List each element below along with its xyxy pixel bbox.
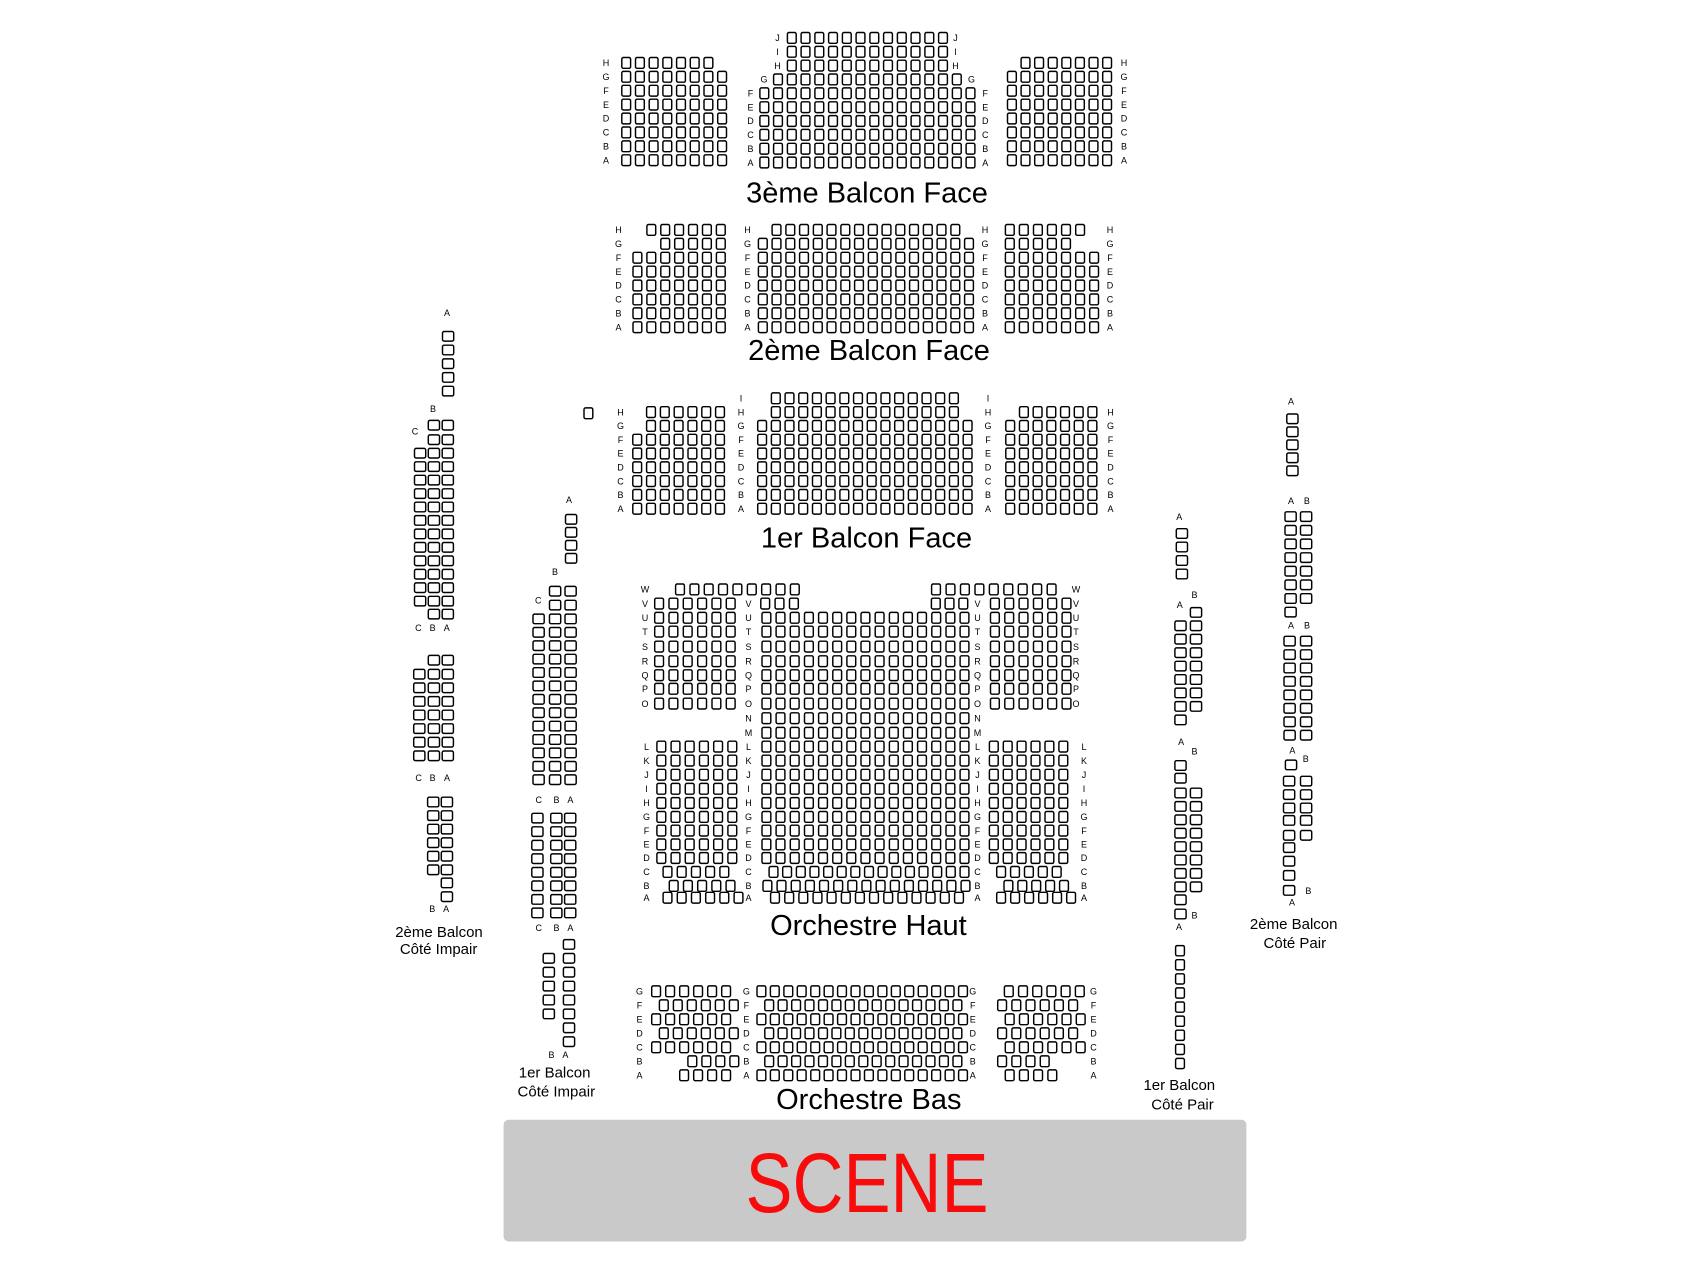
svg-text:D: D xyxy=(617,463,624,473)
svg-text:C: C xyxy=(535,596,542,606)
svg-text:D: D xyxy=(1121,114,1128,124)
svg-text:F: F xyxy=(1107,253,1113,263)
svg-text:A: A xyxy=(1178,737,1184,747)
svg-text:A: A xyxy=(744,322,750,332)
svg-text:F: F xyxy=(744,1001,750,1011)
svg-text:D: D xyxy=(643,853,650,863)
svg-text:G: G xyxy=(737,421,744,431)
svg-text:G: G xyxy=(617,421,624,431)
svg-text:A: A xyxy=(1081,893,1087,903)
svg-text:Orchestre Haut: Orchestre Haut xyxy=(770,910,967,942)
svg-text:B: B xyxy=(553,795,559,805)
svg-text:A: A xyxy=(1177,600,1183,610)
svg-text:A: A xyxy=(617,504,623,514)
svg-text:F: F xyxy=(975,826,981,836)
svg-text:F: F xyxy=(1108,435,1114,445)
svg-text:A: A xyxy=(1176,512,1182,522)
svg-text:M: M xyxy=(745,728,753,738)
svg-text:H: H xyxy=(974,798,981,808)
svg-text:I: I xyxy=(1083,784,1086,794)
svg-text:B: B xyxy=(985,490,991,500)
svg-text:B: B xyxy=(1191,911,1197,921)
svg-text:B: B xyxy=(1304,496,1310,506)
svg-text:G: G xyxy=(1090,987,1097,997)
svg-text:J: J xyxy=(644,770,649,780)
svg-text:E: E xyxy=(738,449,744,459)
svg-text:I: I xyxy=(747,784,750,794)
svg-text:F: F xyxy=(1091,1001,1097,1011)
svg-text:A: A xyxy=(1288,621,1294,631)
svg-text:S: S xyxy=(974,642,980,652)
svg-text:B: B xyxy=(1305,886,1311,896)
svg-text:G: G xyxy=(643,812,650,822)
svg-text:O: O xyxy=(1072,699,1079,709)
svg-text:E: E xyxy=(974,840,980,850)
svg-text:O: O xyxy=(641,699,648,709)
svg-text:E: E xyxy=(982,267,988,277)
svg-text:C: C xyxy=(1081,867,1088,877)
svg-text:S: S xyxy=(745,642,751,652)
svg-text:C: C xyxy=(536,923,543,933)
svg-text:B: B xyxy=(974,881,980,891)
svg-text:V: V xyxy=(745,599,751,609)
svg-text:N: N xyxy=(974,713,981,723)
svg-text:A: A xyxy=(745,893,751,903)
svg-text:E: E xyxy=(603,100,609,110)
svg-text:C: C xyxy=(636,1043,643,1053)
svg-text:L: L xyxy=(644,742,649,752)
svg-text:L: L xyxy=(746,742,751,752)
svg-text:A: A xyxy=(747,158,753,168)
svg-text:B: B xyxy=(548,1050,554,1060)
svg-text:A: A xyxy=(982,158,988,168)
svg-text:B: B xyxy=(743,1057,749,1067)
svg-text:C: C xyxy=(1107,476,1114,486)
svg-text:D: D xyxy=(636,1029,643,1039)
svg-text:A: A xyxy=(636,1071,642,1081)
svg-text:B: B xyxy=(617,490,623,500)
svg-text:R: R xyxy=(974,656,981,666)
svg-text:A: A xyxy=(985,504,991,514)
svg-text:K: K xyxy=(974,756,980,766)
svg-text:B: B xyxy=(982,309,988,319)
svg-text:F: F xyxy=(618,435,624,445)
svg-text:3ème Balcon Face: 3ème Balcon Face xyxy=(746,178,988,210)
svg-text:F: F xyxy=(616,253,622,263)
svg-text:B: B xyxy=(429,904,435,914)
svg-text:C: C xyxy=(1107,295,1114,305)
svg-text:H: H xyxy=(617,407,624,417)
svg-text:D: D xyxy=(985,463,992,473)
svg-text:A: A xyxy=(970,1071,976,1081)
svg-text:Q: Q xyxy=(641,670,648,680)
svg-text:A: A xyxy=(1090,1071,1096,1081)
svg-text:F: F xyxy=(970,1001,976,1011)
svg-text:G: G xyxy=(1120,72,1127,82)
svg-text:C: C xyxy=(744,295,751,305)
svg-text:C: C xyxy=(1121,128,1128,138)
svg-text:A: A xyxy=(1107,322,1113,332)
svg-text:V: V xyxy=(642,599,648,609)
svg-text:1er Balcon: 1er Balcon xyxy=(519,1065,591,1082)
svg-text:C: C xyxy=(970,1043,977,1053)
svg-text:C: C xyxy=(747,130,754,140)
svg-text:D: D xyxy=(982,281,989,291)
svg-text:H: H xyxy=(1107,225,1114,235)
svg-text:K: K xyxy=(1081,756,1087,766)
svg-text:A: A xyxy=(1288,397,1294,407)
svg-text:Côté Pair: Côté Pair xyxy=(1264,935,1327,952)
svg-text:Q: Q xyxy=(974,670,981,680)
svg-text:D: D xyxy=(603,114,610,124)
svg-text:E: E xyxy=(744,267,750,277)
svg-text:B: B xyxy=(552,567,558,577)
svg-text:2ème Balcon: 2ème Balcon xyxy=(395,924,483,941)
svg-text:E: E xyxy=(982,102,988,112)
svg-text:J: J xyxy=(775,33,780,43)
svg-text:H: H xyxy=(1081,798,1088,808)
svg-text:E: E xyxy=(615,267,621,277)
svg-text:C: C xyxy=(643,867,650,877)
svg-text:E: E xyxy=(985,449,991,459)
svg-text:G: G xyxy=(636,987,643,997)
svg-text:S: S xyxy=(1073,642,1079,652)
svg-text:F: F xyxy=(603,86,609,96)
svg-text:H: H xyxy=(738,407,745,417)
svg-text:F: F xyxy=(745,253,751,263)
svg-text:E: E xyxy=(1107,449,1113,459)
svg-text:E: E xyxy=(1081,840,1087,850)
svg-text:C: C xyxy=(603,128,610,138)
svg-text:H: H xyxy=(982,225,989,235)
svg-text:C: C xyxy=(415,773,422,783)
svg-text:F: F xyxy=(1081,826,1087,836)
svg-text:E: E xyxy=(1090,1015,1096,1025)
svg-text:H: H xyxy=(603,58,610,68)
svg-text:E: E xyxy=(1121,100,1127,110)
svg-text:G: G xyxy=(981,239,988,249)
svg-text:A: A xyxy=(615,322,621,332)
svg-text:E: E xyxy=(617,449,623,459)
svg-text:J: J xyxy=(975,770,980,780)
svg-text:A: A xyxy=(1289,746,1295,756)
svg-text:F: F xyxy=(985,435,991,445)
svg-text:A: A xyxy=(982,322,988,332)
svg-text:N: N xyxy=(745,713,752,723)
svg-text:J: J xyxy=(746,770,751,780)
svg-text:A: A xyxy=(444,308,450,318)
svg-text:H: H xyxy=(1107,407,1114,417)
svg-text:I: I xyxy=(976,784,979,794)
svg-text:B: B xyxy=(744,309,750,319)
svg-text:D: D xyxy=(1107,281,1114,291)
svg-text:B: B xyxy=(1191,590,1197,600)
svg-text:J: J xyxy=(953,33,958,43)
svg-text:G: G xyxy=(760,75,767,85)
svg-text:U: U xyxy=(745,613,752,623)
svg-text:C: C xyxy=(415,623,422,633)
svg-text:D: D xyxy=(1107,463,1114,473)
svg-text:D: D xyxy=(745,853,752,863)
svg-text:D: D xyxy=(1081,853,1088,863)
svg-text:I: I xyxy=(987,394,990,404)
svg-text:C: C xyxy=(743,1043,750,1053)
svg-text:B: B xyxy=(1090,1057,1096,1067)
svg-text:B: B xyxy=(1191,746,1197,756)
svg-text:B: B xyxy=(747,144,753,154)
svg-text:B: B xyxy=(553,923,559,933)
svg-text:H: H xyxy=(643,798,650,808)
svg-text:B: B xyxy=(745,881,751,891)
svg-text:C: C xyxy=(974,867,981,877)
svg-text:U: U xyxy=(1073,613,1080,623)
svg-text:G: G xyxy=(744,239,751,249)
svg-text:G: G xyxy=(1106,239,1113,249)
svg-text:D: D xyxy=(1090,1029,1097,1039)
svg-text:C: C xyxy=(745,867,752,877)
svg-text:E: E xyxy=(743,1015,749,1025)
svg-text:G: G xyxy=(974,812,981,822)
svg-text:A: A xyxy=(444,773,450,783)
svg-text:B: B xyxy=(636,1057,642,1067)
svg-text:L: L xyxy=(1081,742,1086,752)
svg-text:U: U xyxy=(974,613,981,623)
svg-text:B: B xyxy=(1107,490,1113,500)
svg-text:R: R xyxy=(745,656,752,666)
svg-text:B: B xyxy=(1121,142,1127,152)
svg-text:E: E xyxy=(643,840,649,850)
svg-text:B: B xyxy=(1107,309,1113,319)
svg-text:A: A xyxy=(567,923,573,933)
svg-text:I: I xyxy=(740,394,743,404)
svg-text:B: B xyxy=(643,881,649,891)
svg-text:B: B xyxy=(1081,881,1087,891)
svg-text:O: O xyxy=(745,699,752,709)
svg-text:Côté Impair: Côté Impair xyxy=(400,941,478,958)
svg-text:C: C xyxy=(738,476,745,486)
svg-text:V: V xyxy=(974,599,980,609)
svg-text:H: H xyxy=(1121,58,1128,68)
svg-text:P: P xyxy=(974,684,980,694)
svg-text:F: F xyxy=(983,89,989,99)
svg-text:E: E xyxy=(1107,267,1113,277)
svg-text:H: H xyxy=(615,225,622,235)
svg-text:T: T xyxy=(975,627,981,637)
svg-text:A: A xyxy=(743,1071,749,1081)
svg-text:A: A xyxy=(643,893,649,903)
svg-text:H: H xyxy=(774,61,781,71)
svg-text:L: L xyxy=(975,742,980,752)
svg-text:B: B xyxy=(738,490,744,500)
svg-text:Orchestre Bas: Orchestre Bas xyxy=(776,1084,961,1116)
svg-text:F: F xyxy=(982,253,988,263)
svg-text:F: F xyxy=(1121,86,1127,96)
svg-text:A: A xyxy=(603,155,609,165)
svg-text:H: H xyxy=(952,61,959,71)
svg-text:D: D xyxy=(615,281,622,291)
svg-text:A: A xyxy=(1289,898,1295,908)
svg-text:A: A xyxy=(1107,504,1113,514)
svg-text:D: D xyxy=(747,116,754,126)
svg-text:A: A xyxy=(738,504,744,514)
svg-text:I: I xyxy=(954,47,957,57)
svg-text:2ème Balcon Face: 2ème Balcon Face xyxy=(748,335,990,367)
svg-text:F: F xyxy=(637,1001,643,1011)
svg-text:B: B xyxy=(1303,754,1309,764)
svg-text:T: T xyxy=(746,627,752,637)
svg-text:V: V xyxy=(1073,599,1079,609)
svg-text:Côté Impair: Côté Impair xyxy=(518,1084,596,1101)
svg-text:F: F xyxy=(738,435,744,445)
svg-text:B: B xyxy=(982,144,988,154)
svg-text:C: C xyxy=(617,476,624,486)
svg-text:A: A xyxy=(562,1050,568,1060)
svg-text:J: J xyxy=(1082,770,1087,780)
svg-text:D: D xyxy=(982,116,989,126)
svg-text:A: A xyxy=(1121,155,1127,165)
svg-text:P: P xyxy=(1073,684,1079,694)
svg-text:F: F xyxy=(748,89,754,99)
svg-text:A: A xyxy=(1288,496,1294,506)
svg-text:E: E xyxy=(745,840,751,850)
svg-text:E: E xyxy=(636,1015,642,1025)
svg-text:C: C xyxy=(985,476,992,486)
svg-text:G: G xyxy=(615,239,622,249)
svg-text:H: H xyxy=(745,798,752,808)
svg-text:G: G xyxy=(984,421,991,431)
svg-text:H: H xyxy=(985,407,992,417)
svg-text:A: A xyxy=(567,795,573,805)
svg-text:B: B xyxy=(430,623,436,633)
svg-text:G: G xyxy=(1107,421,1114,431)
svg-text:F: F xyxy=(746,826,752,836)
svg-text:T: T xyxy=(1073,627,1079,637)
svg-text:G: G xyxy=(745,812,752,822)
svg-text:G: G xyxy=(602,72,609,82)
svg-text:C: C xyxy=(412,427,419,437)
svg-text:O: O xyxy=(974,699,981,709)
svg-text:D: D xyxy=(743,1029,750,1039)
svg-text:R: R xyxy=(642,656,649,666)
svg-text:Q: Q xyxy=(745,670,752,680)
svg-text:A: A xyxy=(974,893,980,903)
svg-text:B: B xyxy=(430,773,436,783)
svg-text:1er Balcon Face: 1er Balcon Face xyxy=(761,523,972,555)
svg-text:B: B xyxy=(430,404,436,414)
svg-text:A: A xyxy=(443,904,449,914)
svg-text:A: A xyxy=(1176,922,1182,932)
svg-text:G: G xyxy=(1080,812,1087,822)
svg-text:G: G xyxy=(969,987,976,997)
svg-text:G: G xyxy=(743,987,750,997)
svg-text:G: G xyxy=(968,75,975,85)
svg-text:R: R xyxy=(1073,656,1080,666)
svg-text:D: D xyxy=(970,1029,977,1039)
svg-text:K: K xyxy=(745,756,751,766)
svg-text:1er Balcon: 1er Balcon xyxy=(1143,1077,1215,1094)
svg-text:K: K xyxy=(643,756,649,766)
svg-text:C: C xyxy=(982,130,989,140)
svg-text:A: A xyxy=(566,495,572,505)
svg-text:T: T xyxy=(642,627,648,637)
svg-text:I: I xyxy=(645,784,648,794)
svg-text:A: A xyxy=(444,623,450,633)
svg-text:F: F xyxy=(644,826,650,836)
svg-text:C: C xyxy=(982,295,989,305)
svg-text:D: D xyxy=(738,463,745,473)
svg-text:C: C xyxy=(1090,1043,1097,1053)
svg-text:2ème Balcon: 2ème Balcon xyxy=(1250,916,1338,933)
svg-text:Q: Q xyxy=(1072,670,1079,680)
svg-text:B: B xyxy=(603,142,609,152)
svg-text:B: B xyxy=(970,1057,976,1067)
svg-text:E: E xyxy=(747,102,753,112)
svg-text:Côté Pair: Côté Pair xyxy=(1151,1097,1214,1114)
svg-text:SCENE: SCENE xyxy=(746,1136,989,1230)
svg-text:S: S xyxy=(642,642,648,652)
svg-text:U: U xyxy=(642,613,649,623)
svg-text:B: B xyxy=(615,309,621,319)
svg-text:W: W xyxy=(1072,585,1081,595)
svg-text:W: W xyxy=(641,585,650,595)
svg-text:P: P xyxy=(642,684,648,694)
svg-text:C: C xyxy=(615,295,622,305)
svg-text:M: M xyxy=(974,728,982,738)
svg-text:C: C xyxy=(536,795,543,805)
svg-text:B: B xyxy=(1304,621,1310,631)
svg-text:H: H xyxy=(744,225,751,235)
svg-text:D: D xyxy=(744,281,751,291)
svg-text:P: P xyxy=(745,684,751,694)
svg-text:E: E xyxy=(970,1015,976,1025)
svg-text:D: D xyxy=(974,853,981,863)
svg-text:I: I xyxy=(776,47,779,57)
